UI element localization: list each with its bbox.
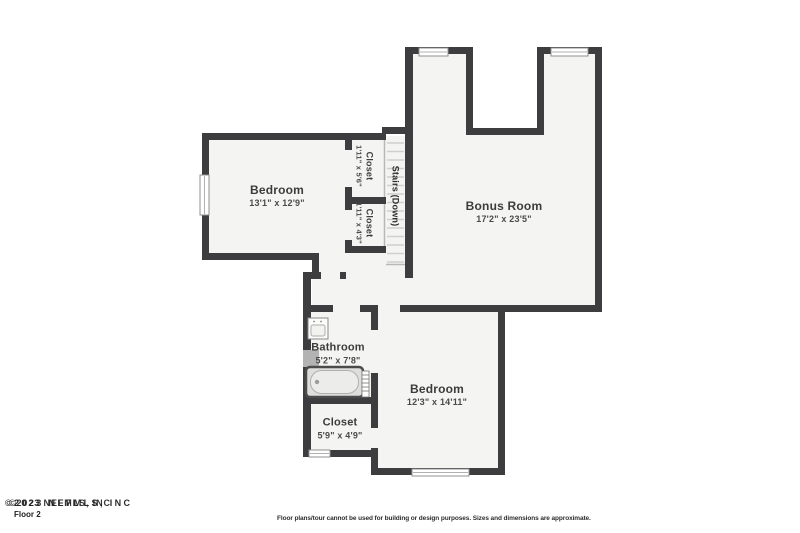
mls-watermark-text-overlap: ©2023 NEFMLS, INC xyxy=(9,498,111,508)
room-title: Closet xyxy=(363,145,374,187)
window-icon xyxy=(309,450,330,457)
room-dims: 5'2" x 7'8" xyxy=(311,355,365,366)
sink-vanity-icon xyxy=(308,318,328,339)
room-dims: 12'3" x 14'11" xyxy=(407,397,467,408)
window-icon xyxy=(412,469,469,476)
room-label-bedroom-upper: Bedroom 13'1" x 12'9" xyxy=(249,183,304,209)
room-title: Stairs (Down) xyxy=(389,166,400,227)
bathtub-icon xyxy=(306,367,363,397)
room-label-bedroom-lower: Bedroom 12'3" x 14'11" xyxy=(407,382,467,408)
room-dims: 13'1" x 12'9" xyxy=(249,198,304,209)
door-leaf-icon xyxy=(362,371,369,397)
room-label-bathroom: Bathroom 5'2" x 7'8" xyxy=(311,342,365,367)
room-title: Closet xyxy=(317,417,362,431)
room-dims: 5'9" x 4'9" xyxy=(317,430,362,441)
room-title: Bathroom xyxy=(311,342,365,356)
floor-number-label: Floor 2 xyxy=(14,510,41,519)
room-title: Bedroom xyxy=(249,183,304,198)
floor-plan-page: Bedroom 13'1" x 12'9" Closet 1'11" x 5'6… xyxy=(0,0,800,533)
disclaimer-text: Floor plans/tour cannot be used for buil… xyxy=(277,515,591,522)
room-label-stairs: Stairs (Down) xyxy=(389,166,400,227)
room-dims: 17'2" x 23'5" xyxy=(466,214,543,225)
room-dims: 1'11" x 4'3" xyxy=(354,202,363,244)
room-dims: 1'11" x 5'6" xyxy=(354,145,363,187)
room-label-bonus-room: Bonus Room 17'2" x 23'5" xyxy=(466,199,543,225)
room-label-closet-upper-bottom: Closet 1'11" x 4'3" xyxy=(354,202,375,244)
room-title: Bedroom xyxy=(407,382,467,397)
floor-plan-svg xyxy=(0,0,800,533)
room-title: Bonus Room xyxy=(466,199,543,214)
room-title: Closet xyxy=(363,202,374,244)
window-icon xyxy=(200,175,209,215)
room-label-closet-lower: Closet 5'9" x 4'9" xyxy=(317,417,362,442)
window-icon xyxy=(419,48,448,56)
room-label-closet-upper-top: Closet 1'11" x 5'6" xyxy=(354,145,375,187)
window-icon xyxy=(551,48,588,56)
